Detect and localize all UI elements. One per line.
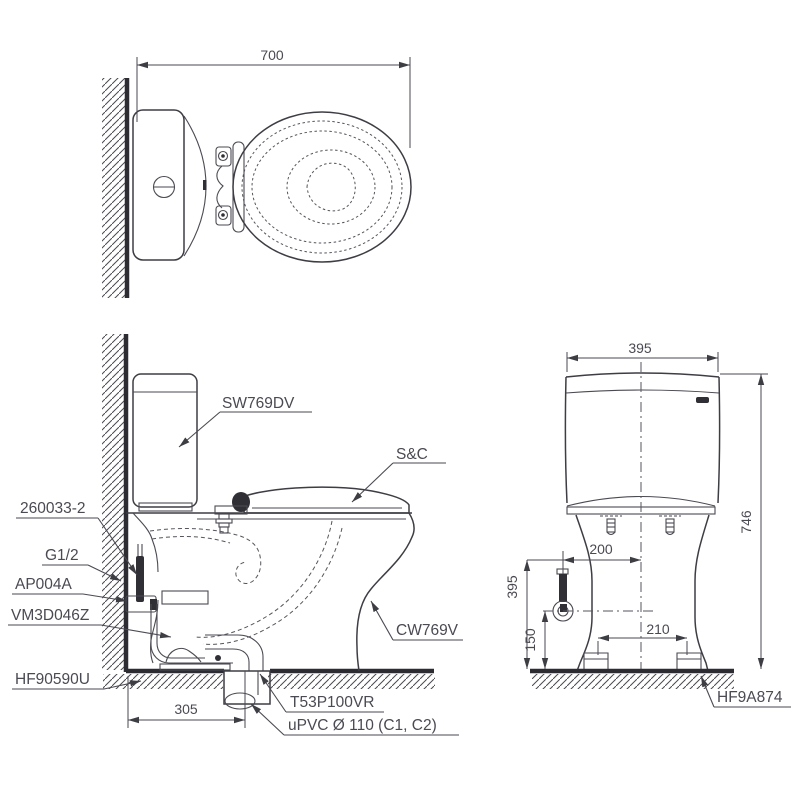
svg-text:SW769DV: SW769DV [222,395,295,412]
svg-text:G1/2: G1/2 [45,547,79,564]
top-view: 700 [102,47,411,298]
brand-logo-mark [696,397,709,403]
dim-395-width-text: 395 [628,340,652,356]
label-bowl: CW769V [371,601,463,640]
svg-text:HF90590U: HF90590U [15,671,90,688]
technical-drawing-page: 700 [0,0,800,800]
svg-text:S&C: S&C [396,446,428,463]
tank-bolt-left [600,516,622,535]
svg-text:260033-2: 260033-2 [20,500,86,517]
dimension-700: 700 [137,47,410,148]
seat-side [126,487,412,533]
wall-hatching-top [102,78,126,298]
dim-210-text: 210 [646,621,670,637]
dim-150-text: 150 [522,628,538,652]
dimension-210: 210 [598,621,687,655]
svg-text:T53P100VR: T53P100VR [290,694,374,711]
floor-hatching-b [268,674,435,689]
tank-bolt-right [659,516,681,535]
dim-746-text: 746 [738,510,754,534]
dimension-200: 200 [563,541,641,574]
flush-valve-internals [150,521,342,671]
svg-text:AP004A: AP004A [15,576,73,593]
label-seat: S&C [352,446,446,502]
front-view: 395 746 395 150 200 210 HF9A874 [504,340,791,707]
wall-hatching-side [102,334,125,670]
dim-200-text: 200 [589,541,613,557]
dim-395-height-text: 395 [504,575,520,599]
base-bolt-cap-right [677,653,701,671]
svg-text:CW769V: CW769V [396,622,459,639]
supply-riser [136,556,144,602]
dimension-395-width: 395 [567,340,718,372]
tank-clip [203,180,207,190]
dim-305-text: 305 [174,701,198,717]
bowl-front [576,515,709,671]
dimension-150: 150 [522,611,545,669]
dimension-746: 746 [720,374,768,669]
dim-700-text: 700 [260,47,284,63]
seat-hinge-plan [216,142,244,232]
side-section-view: 305 SW769DV S&C 260033-2 G1/2 [8,334,463,735]
supply-valve-front [543,569,657,621]
svg-text:VM3D046Z: VM3D046Z [11,607,89,624]
base-bolt-cap-left [584,653,608,671]
tank-front [565,373,719,535]
svg-text:HF9A874: HF9A874 [717,689,783,706]
drain-pipe [224,671,270,728]
label-cistern: SW769DV [179,395,312,447]
seat-lid-plan [233,112,411,262]
svg-text:uPVC Ø 110 (C1, C2): uPVC Ø 110 (C1, C2) [288,717,437,734]
cistern-side [133,374,197,511]
water-supply-side [126,544,157,612]
toilet-installation-drawing: 700 [0,0,800,800]
floor-hatching-a [103,674,223,689]
tank-plan [133,110,207,260]
